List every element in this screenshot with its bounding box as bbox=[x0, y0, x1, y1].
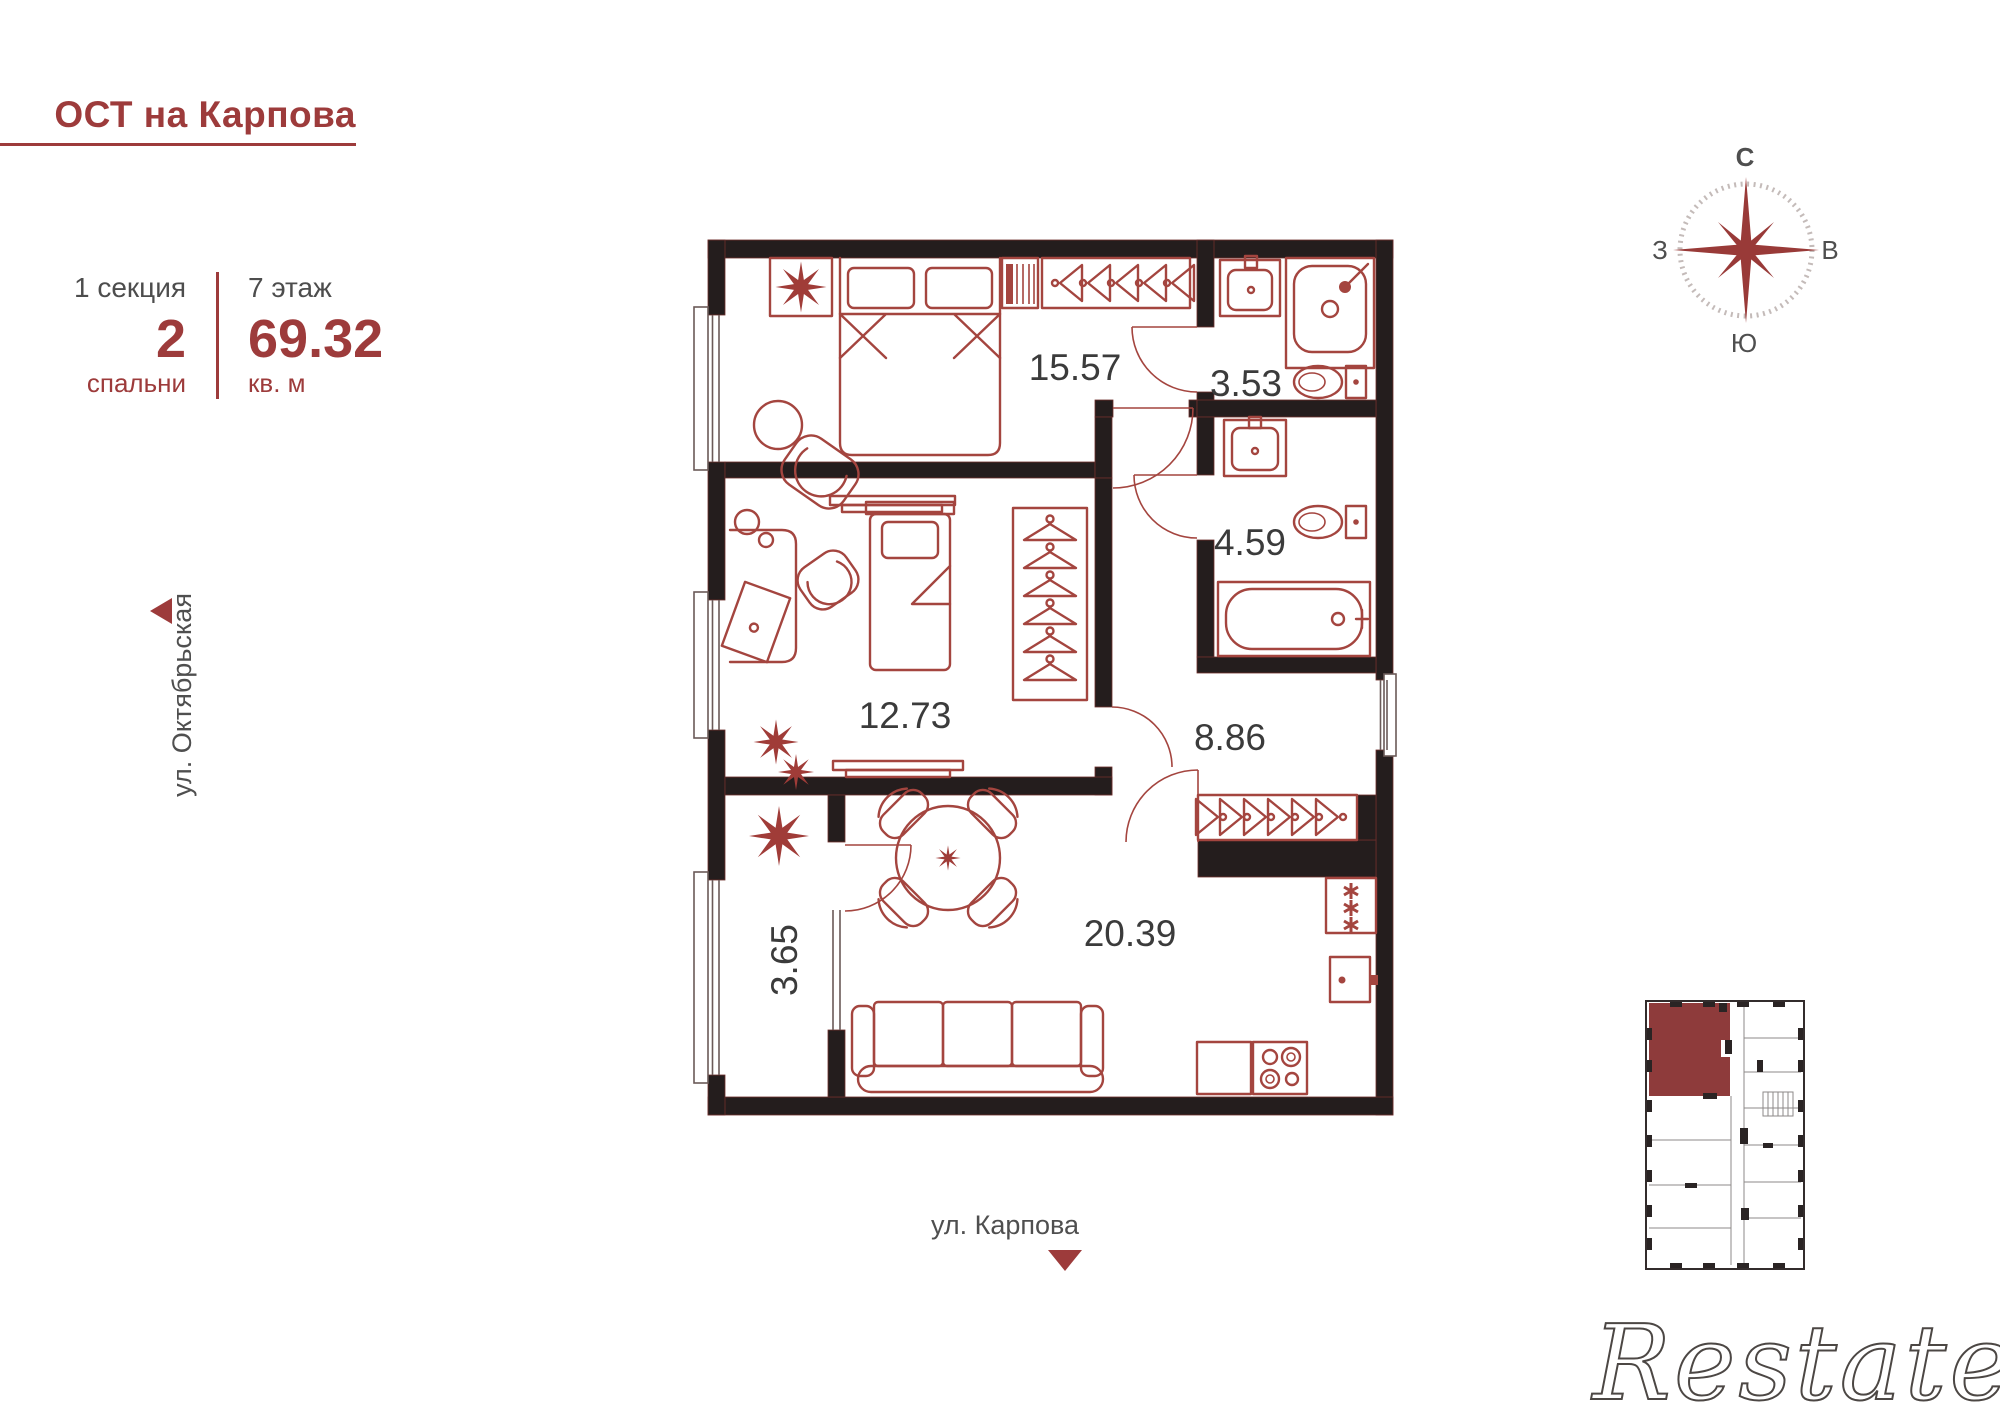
compass-north: С bbox=[1736, 142, 1755, 172]
mini-building-plan bbox=[1645, 1000, 1805, 1270]
dining-table-icon bbox=[868, 778, 1028, 938]
area-unit: кв. м bbox=[248, 368, 306, 399]
compass-west: З bbox=[1652, 235, 1668, 265]
sofa-icon bbox=[852, 1002, 1103, 1092]
kitchen-sink-icon bbox=[1330, 957, 1378, 1002]
toilet-icon bbox=[1294, 366, 1366, 398]
single-bed-icon bbox=[866, 502, 954, 670]
title-underline bbox=[0, 143, 356, 146]
bathtub-icon bbox=[1218, 582, 1370, 656]
double-bed-icon bbox=[840, 258, 1000, 455]
unit-info: 1 секция 2 спальни 7 этаж 69.32 кв. м bbox=[60, 272, 383, 399]
room-area-label: 20.39 bbox=[1084, 913, 1177, 954]
room-bathroom-2: 4.59 bbox=[1214, 417, 1370, 656]
room-area-label: 15.57 bbox=[1029, 347, 1122, 388]
sink-icon bbox=[1220, 256, 1280, 316]
room-bedroom-2: 12.73 bbox=[722, 496, 1087, 790]
closet-hangers-icon bbox=[1013, 508, 1087, 700]
stairs-icon bbox=[1763, 1092, 1793, 1116]
side-table-icon bbox=[754, 401, 802, 449]
section-label: 1 секция bbox=[74, 272, 186, 304]
room-bathroom-1: 3.53 bbox=[1210, 256, 1374, 404]
plant-icon bbox=[776, 262, 827, 313]
toilet-icon bbox=[1294, 506, 1366, 538]
compass-needle bbox=[1673, 177, 1819, 323]
room-balcony: 3.65 bbox=[749, 806, 809, 996]
wardrobe-icon bbox=[1042, 258, 1194, 308]
floor-label: 7 этаж bbox=[248, 272, 332, 304]
project-title: ОСТ на Карпова bbox=[0, 94, 356, 136]
unit-highlight bbox=[1649, 1003, 1730, 1096]
dresser-icon bbox=[830, 496, 955, 505]
bedrooms-label: спальни bbox=[87, 368, 186, 399]
street-left-block: ул. Октябрьская bbox=[120, 560, 240, 880]
unit-info-divider bbox=[216, 272, 219, 399]
street-left-label: ул. Октябрьская bbox=[167, 593, 197, 797]
room-area-label: 12.73 bbox=[859, 695, 952, 736]
room-area-label: 3.53 bbox=[1210, 363, 1282, 404]
page: ОСТ на Карпова 1 секция 2 спальни 7 этаж… bbox=[0, 0, 2000, 1414]
room-area-label: 4.59 bbox=[1214, 522, 1286, 563]
bookshelf-icon bbox=[1002, 258, 1038, 308]
bedrooms-count: 2 bbox=[156, 312, 186, 366]
hall-wardrobe-icon bbox=[1196, 795, 1357, 840]
watermark-logo: Restate bbox=[1593, 1302, 2000, 1414]
sink-icon bbox=[1224, 417, 1286, 476]
street-bottom-label: ул. Карпова bbox=[855, 1210, 1155, 1241]
shower-icon bbox=[1286, 258, 1374, 368]
desk-chair-icon bbox=[791, 544, 865, 616]
tv-icon bbox=[833, 761, 963, 770]
room-area-label: 8.86 bbox=[1194, 717, 1266, 758]
unit-info-right: 7 этаж 69.32 кв. м bbox=[248, 272, 383, 399]
plant-icon bbox=[749, 806, 809, 866]
doors bbox=[845, 327, 1198, 911]
compass-south: Ю bbox=[1731, 328, 1757, 358]
unit-info-left: 1 секция 2 спальни bbox=[60, 272, 186, 399]
floor-plan: 15.57 3.53 bbox=[690, 230, 1400, 1130]
street-bottom-arrow-icon bbox=[1048, 1250, 1082, 1271]
room-hallway: 8.86 bbox=[1194, 717, 1357, 840]
desk-icon bbox=[722, 510, 796, 662]
compass-icon: С Ю З В bbox=[1630, 100, 1870, 400]
room-area-label: 3.65 bbox=[764, 924, 805, 996]
area-value: 69.32 bbox=[248, 312, 383, 366]
fridge-icon bbox=[1326, 878, 1376, 933]
compass-east: В bbox=[1821, 235, 1838, 265]
kitchen-counter-icon bbox=[1197, 1042, 1251, 1094]
stove-icon bbox=[1253, 1042, 1307, 1094]
room-living-kitchen: 20.39 bbox=[852, 778, 1378, 1094]
